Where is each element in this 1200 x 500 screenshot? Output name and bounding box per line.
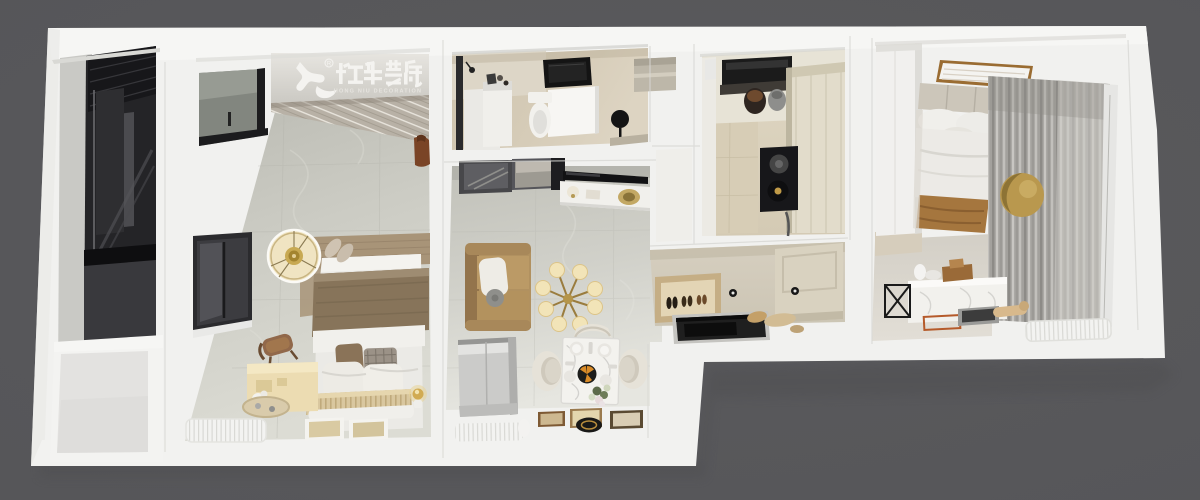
svg-text:HONG NIU DECORATION: HONG NIU DECORATION (334, 89, 422, 95)
svg-text:R: R (327, 62, 332, 68)
